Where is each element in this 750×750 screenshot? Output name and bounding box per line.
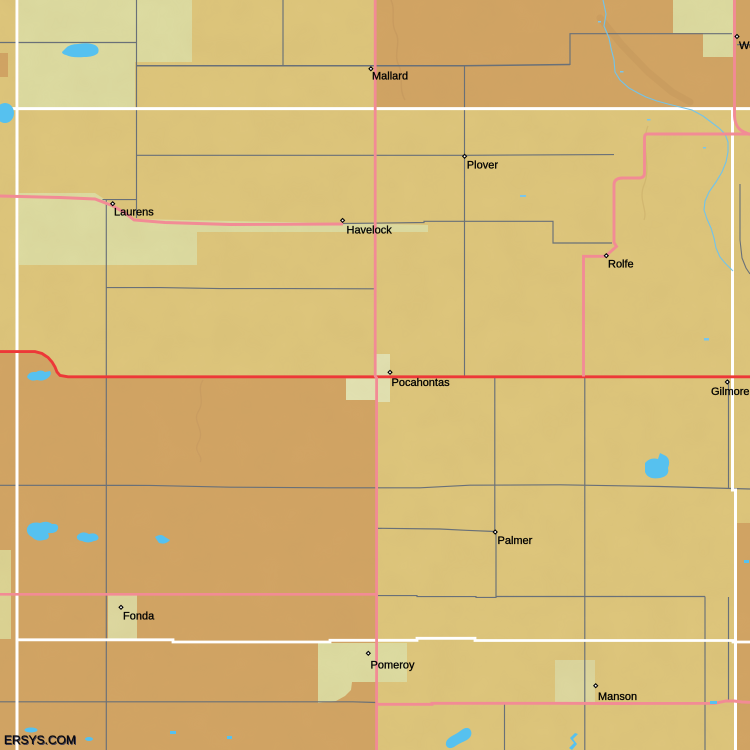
svg-text:Plover: Plover bbox=[467, 160, 499, 172]
svg-text:Laurens: Laurens bbox=[114, 207, 154, 219]
svg-text:Manson: Manson bbox=[598, 691, 637, 703]
svg-text:West Bend: West Bend bbox=[739, 40, 750, 52]
svg-text:Pocahontas: Pocahontas bbox=[392, 377, 451, 389]
svg-text:Havelock: Havelock bbox=[347, 225, 393, 237]
svg-text:Gilmore: Gilmore bbox=[711, 386, 750, 398]
svg-text:Palmer: Palmer bbox=[498, 535, 533, 547]
svg-text:Fonda: Fonda bbox=[123, 611, 155, 623]
svg-text:Rolfe: Rolfe bbox=[608, 259, 634, 271]
svg-text:Pomeroy: Pomeroy bbox=[371, 660, 416, 672]
svg-text:Mallard: Mallard bbox=[372, 71, 408, 83]
svg-text:ERSYS.COM: ERSYS.COM bbox=[4, 733, 76, 747]
